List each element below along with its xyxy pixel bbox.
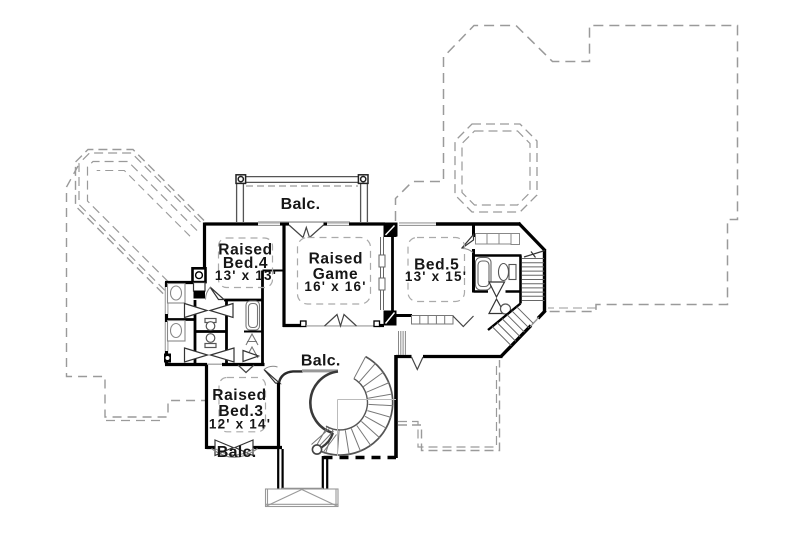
svg-text:Raised: Raised (212, 387, 266, 404)
svg-text:13' x 15': 13' x 15' (405, 269, 467, 284)
svg-text:Raised: Raised (309, 251, 363, 268)
svg-text:Balc.: Balc. (281, 196, 321, 213)
svg-text:12' x 14': 12' x 14' (209, 416, 271, 431)
svg-text:16' x 16': 16' x 16' (304, 279, 366, 294)
svg-text:Balc.: Balc. (301, 353, 341, 370)
svg-text:Balc.: Balc. (217, 444, 257, 461)
svg-text:13' x 13': 13' x 13' (215, 268, 277, 283)
